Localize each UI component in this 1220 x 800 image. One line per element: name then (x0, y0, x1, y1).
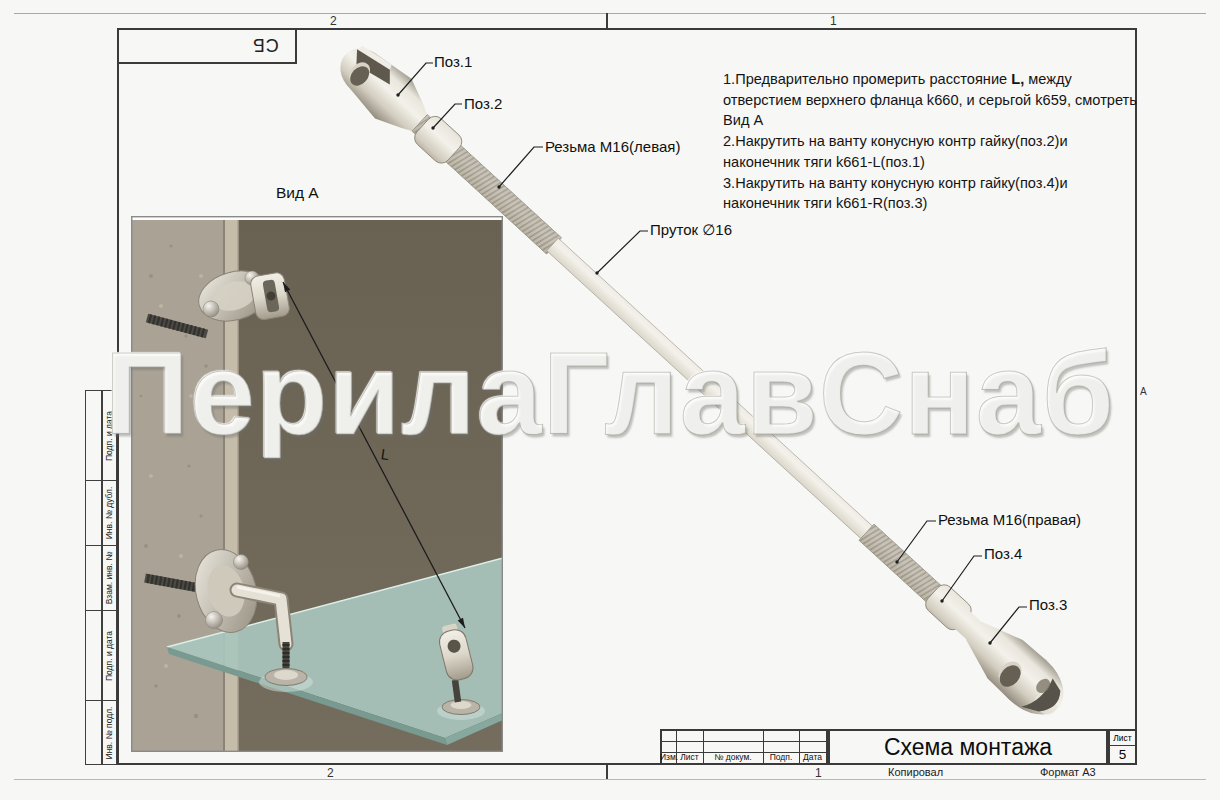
callout-pos1: Поз.1 (434, 53, 472, 70)
zone-number-bottom-left: 2 (327, 766, 334, 780)
sheet-label: Лист (1110, 731, 1135, 746)
strip-divider (101, 390, 103, 765)
instruction-1: 1.Предварительно промерить расстояние L,… (723, 69, 1147, 131)
tb-header-list: Лист (676, 751, 703, 763)
zone-tick-bottom (606, 765, 608, 779)
designation-box: СБ (117, 28, 297, 64)
callout-thread-left: Резьма М16(левая) (545, 138, 680, 155)
sheet-number: 5 (1110, 746, 1135, 763)
copied-label: Копировал (888, 766, 943, 778)
callout-pos3: Поз.3 (1029, 596, 1067, 613)
title-block-sheet-box: Лист 5 (1108, 729, 1137, 765)
instruction-3: 3.Накрутить на ванту конусную контр гайк… (723, 173, 1147, 214)
zone-number-bottom-right: 1 (815, 766, 822, 780)
format-label: Формат А3 (1040, 766, 1096, 778)
instruction-2: 2.Накрутить на ванту конусную контр гайк… (723, 131, 1147, 172)
view-a-label: Вид А (276, 184, 319, 202)
callout-thread-right: Резьма М16(правая) (938, 511, 1081, 528)
instructions-block: 1.Предварительно промерить расстояние L,… (723, 69, 1147, 214)
tb-header-ndokum: № докум. (703, 751, 763, 763)
callout-pos4: Поз.4 (984, 545, 1022, 562)
tb-header-podp: Подп. (763, 751, 799, 763)
callout-rod: Пруток ∅16 (650, 221, 732, 239)
tb-header-data: Дата (799, 751, 826, 763)
title-block-table: Изм. Лист № докум. Подп. Дата (660, 729, 828, 765)
paper-bottom-line (14, 779, 1206, 780)
strip-label-2: Инв. № дубл. (101, 481, 117, 545)
zone-number-top-left: 2 (330, 14, 337, 28)
title-block-title: Схема монтажа (828, 729, 1108, 765)
strip-label-4: Подп. и дата (101, 611, 117, 700)
strip-label-3: Взам. инв. № (101, 546, 117, 610)
zone-letter-a: А (1140, 386, 1147, 397)
paper-top-line (14, 13, 1206, 14)
zone-tick-top (606, 13, 608, 29)
tb-header-izm: Изм. (662, 751, 676, 763)
drawing-sheet: 2 1 2 1 А СБ Подп. и дата Инв. № дубл. В… (0, 0, 1220, 800)
strip-label-5: Инв. № подл. (101, 701, 117, 764)
designation-text: СБ (252, 34, 279, 55)
callout-pos2: Поз.2 (464, 95, 502, 112)
strip-label-1: Подп. и дата (101, 391, 117, 480)
zone-number-top-right: 1 (830, 14, 837, 28)
